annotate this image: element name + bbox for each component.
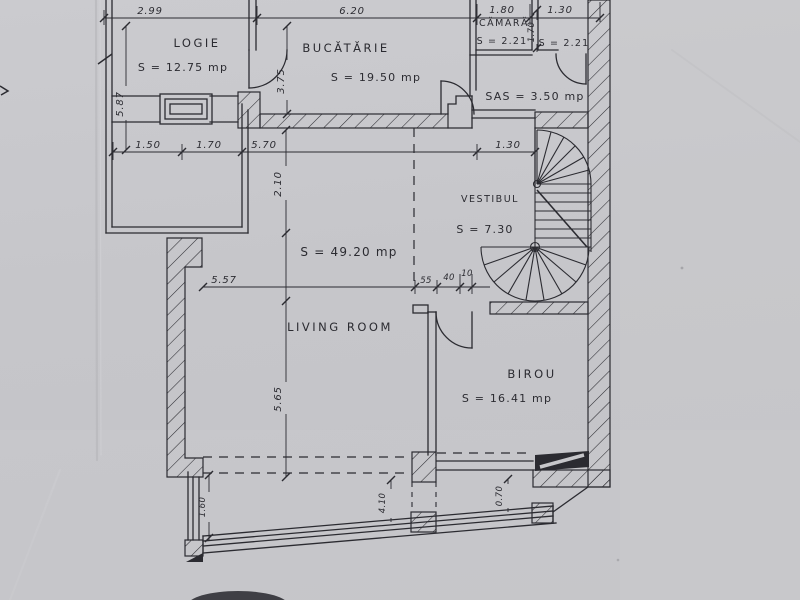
- dim-living-width: 5.57: [211, 275, 236, 286]
- dim-living-55: 55: [420, 276, 432, 286]
- spiral-staircase-segment: [535, 247, 576, 282]
- kitchen-wall-band: [260, 114, 448, 128]
- dim-top-4: 1.30: [547, 5, 572, 16]
- paper-creases-segment: [0, 430, 800, 600]
- walls-segment: [413, 305, 428, 313]
- paper-creases-segment: [96, 0, 97, 460]
- windows-segment: [165, 99, 207, 119]
- dim-kitchen-door: 3.75: [276, 68, 287, 93]
- room-label-bucatarie: BUCĂTĂRIE: [302, 40, 389, 55]
- dim-top-1: 2.99: [137, 6, 162, 17]
- area-label-birou: S = 16.41 mp: [462, 392, 552, 405]
- door-swing-arc: [441, 81, 474, 114]
- door-swing-arc: [556, 54, 586, 84]
- dim-mid-2: 1.70: [196, 140, 221, 151]
- scanned-floor-plan-page: LOGIE S = 12.75 mp BUCĂTĂRIE S = 19.50 m…: [0, 0, 800, 600]
- wall-pillar: [412, 452, 436, 482]
- room-label-logie: LOGIE: [173, 36, 220, 50]
- dim-bottom-3: 0.70: [495, 486, 505, 507]
- paper-creases-segment: [681, 267, 684, 270]
- wall-band: [533, 470, 610, 487]
- balcony-pillar: [411, 512, 436, 532]
- room-label-sas: SAS = 3.50 mp: [485, 90, 584, 103]
- dim-top-2: 6.20: [339, 6, 364, 17]
- dim-mid-1: 1.50: [135, 140, 160, 151]
- area-label-vestibul: S = 7.30: [456, 223, 513, 236]
- dim-camara-depth: 1.70: [527, 22, 537, 43]
- windows-segment: [170, 104, 202, 114]
- spiral-staircase-segment: [535, 247, 586, 265]
- dim-bottom-1: 1.60: [198, 497, 208, 518]
- wall-pillar: [238, 92, 260, 128]
- area-label-living: S = 49.20 mp: [300, 245, 397, 259]
- balcony-pillar-base: [185, 540, 203, 556]
- paper-creases-segment: [617, 559, 620, 562]
- floor-plan-drawing: LOGIE S = 12.75 mp BUCĂTĂRIE S = 19.50 m…: [0, 0, 800, 600]
- spiral-staircase-segment: [484, 247, 535, 265]
- spiral-staircase-segment: [494, 247, 535, 282]
- area-label-logie: S = 12.75 mp: [138, 61, 228, 74]
- birou-top-wall: [490, 302, 588, 314]
- paper-creases-segment: [100, 0, 101, 455]
- dim-logie-height: 5.87: [115, 91, 126, 116]
- room-label-living: LIVING ROOM: [287, 320, 393, 334]
- room-label-birou: BIROU: [507, 367, 556, 381]
- balcony-pillar: [532, 503, 553, 523]
- dim-top-3: 1.80: [489, 5, 514, 16]
- edge-mark: [0, 86, 8, 95]
- walls-segment: [448, 96, 472, 114]
- dim-mid-3: 5.70: [251, 140, 276, 151]
- paper-creases: [0, 0, 800, 600]
- dim-mid-4: 1.30: [495, 140, 520, 151]
- room-label-vestibul: VESTIBUL: [461, 194, 519, 205]
- dim-living-height: 5.65: [273, 386, 284, 411]
- stair-top-wall: [535, 112, 588, 128]
- spiral-staircase-segment: [537, 132, 551, 184]
- dim-hall-width: 2.10: [273, 171, 284, 196]
- dim-bottom-2: 4.10: [378, 493, 388, 514]
- spiral-staircase: [481, 130, 591, 301]
- area-label-bucatarie: S = 19.50 mp: [331, 71, 421, 84]
- area-label-camara: S = 2.21: [477, 36, 528, 47]
- area-label-camara2: S = 2.21: [539, 38, 590, 49]
- spiral-staircase-segment: [481, 247, 589, 301]
- dim-living-40: 40: [443, 273, 455, 283]
- dim-living-10: 10: [461, 269, 473, 279]
- spiral-staircase-segment: [537, 170, 589, 184]
- room-label-camara: CĂMARĂ: [479, 17, 529, 29]
- door-swing-arc: [436, 312, 472, 348]
